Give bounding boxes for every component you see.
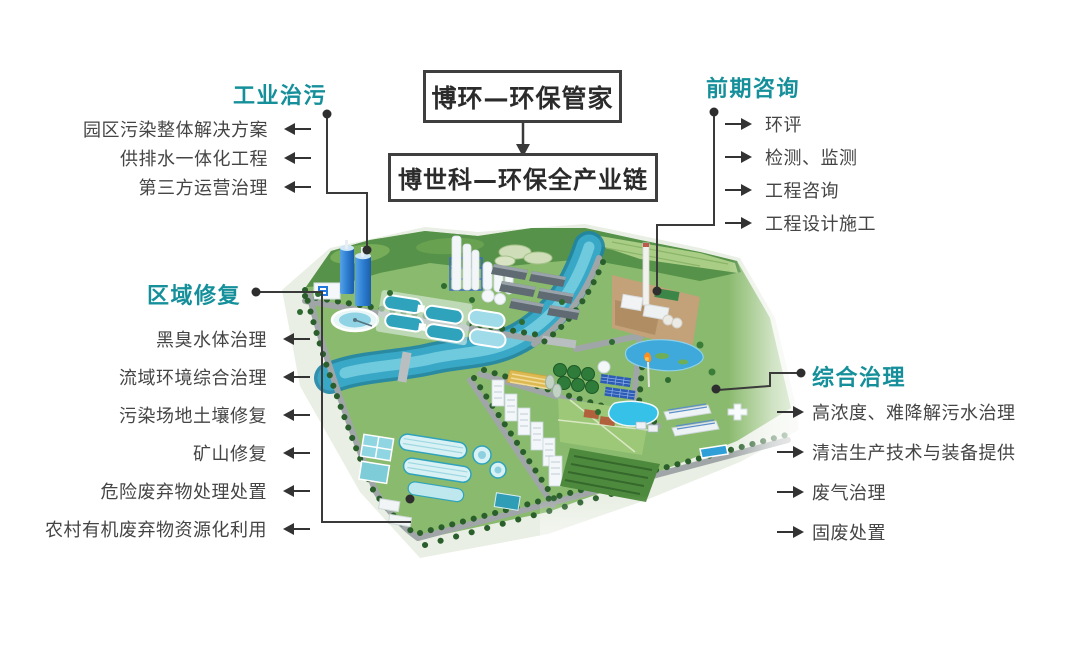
list-item: 固废处置 xyxy=(777,512,886,552)
group-title-industrial: 工业治污 xyxy=(233,78,327,110)
infographic-canvas: 博环—环保管家 博世科—环保全产业链 工业治污 园区污染整体解决方案 供排水一体… xyxy=(0,0,1080,647)
item-label: 供排水一体化工程 xyxy=(120,145,268,171)
right-arrow-icon xyxy=(725,184,752,196)
left-arrow-icon xyxy=(283,333,310,345)
clarifier xyxy=(332,309,378,331)
left-arrow-icon xyxy=(284,152,311,164)
item-label: 检测、监测 xyxy=(765,144,858,170)
item-label: 园区污染整体解决方案 xyxy=(83,116,268,142)
right-arrow-icon xyxy=(777,526,804,538)
group-title-consulting: 前期咨询 xyxy=(706,71,800,103)
right-arrow-icon xyxy=(725,217,752,229)
list-item: 流域环境综合治理 xyxy=(119,358,310,396)
chimney xyxy=(643,243,649,305)
comprehensive-item-list: 高浓度、难降解污水治理 清洁生产技术与装备提供 废气治理 固废处置 xyxy=(777,392,1016,552)
item-label: 流域环境综合治理 xyxy=(119,364,267,390)
list-item: 农村有机废弃物资源化利用 xyxy=(45,510,310,548)
list-item: 环评 xyxy=(725,107,802,140)
item-label: 废气治理 xyxy=(812,479,886,505)
list-item: 废气治理 xyxy=(777,472,886,512)
left-arrow-icon xyxy=(283,409,310,421)
list-item: 清洁生产技术与装备提供 xyxy=(777,432,1016,472)
item-label: 高浓度、难降解污水治理 xyxy=(812,399,1016,425)
right-arrow-icon xyxy=(777,406,804,418)
item-label: 工程设计施工 xyxy=(765,210,876,236)
item-label: 黑臭水体治理 xyxy=(156,326,267,352)
main-title-box: 博环—环保管家 xyxy=(423,70,622,123)
item-label: 环评 xyxy=(765,111,802,137)
item-label: 固废处置 xyxy=(812,519,886,545)
right-arrow-icon xyxy=(725,118,752,130)
group-title-remediation: 区域修复 xyxy=(147,278,241,310)
list-item: 高浓度、难降解污水治理 xyxy=(777,392,1016,432)
list-item: 工程咨询 xyxy=(725,173,839,206)
item-label: 危险废弃物处理处置 xyxy=(101,478,268,504)
list-item: 第三方运营治理 xyxy=(139,172,312,201)
item-label: 矿山修复 xyxy=(193,440,267,466)
list-item: 污染场地土壤修复 xyxy=(119,396,310,434)
blue-storage-tank xyxy=(340,248,354,294)
left-arrow-icon xyxy=(284,123,311,135)
list-item: 危险废弃物处理处置 xyxy=(101,472,311,510)
right-arrow-icon xyxy=(777,446,804,458)
right-arrow-icon xyxy=(777,486,804,498)
list-item: 园区污染整体解决方案 xyxy=(83,114,311,143)
remediation-item-list: 黑臭水体治理 流域环境综合治理 污染场地土壤修复 矿山修复 危险废弃物处理处置 … xyxy=(45,320,310,548)
item-label: 第三方运营治理 xyxy=(139,174,269,200)
connector-industrial xyxy=(327,117,367,248)
group-title-comprehensive: 综合治理 xyxy=(812,360,906,392)
left-arrow-icon xyxy=(283,371,310,383)
list-item: 工程设计施工 xyxy=(725,206,876,239)
list-item: 检测、监测 xyxy=(725,140,858,173)
item-label: 农村有机废弃物资源化利用 xyxy=(45,516,267,542)
list-item: 供排水一体化工程 xyxy=(120,143,311,172)
right-arrow-icon xyxy=(725,151,752,163)
consulting-item-list: 环评 检测、监测 工程咨询 工程设计施工 xyxy=(725,107,876,239)
list-item: 矿山修复 xyxy=(193,434,310,472)
list-item: 黑臭水体治理 xyxy=(156,320,310,358)
industrial-item-list: 园区污染整体解决方案 供排水一体化工程 第三方运营治理 xyxy=(83,114,311,201)
subtitle-box: 博世科—环保全产业链 xyxy=(388,153,658,202)
left-arrow-icon xyxy=(283,523,310,535)
item-label: 清洁生产技术与装备提供 xyxy=(812,439,1016,465)
blue-storage-tank xyxy=(355,256,371,306)
item-label: 污染场地土壤修复 xyxy=(119,402,267,428)
swimming-pool xyxy=(609,401,658,426)
sphere-tank xyxy=(598,361,610,373)
left-arrow-icon xyxy=(283,485,310,497)
item-label: 工程咨询 xyxy=(765,177,839,203)
left-arrow-icon xyxy=(283,447,310,459)
left-arrow-icon xyxy=(284,181,311,193)
